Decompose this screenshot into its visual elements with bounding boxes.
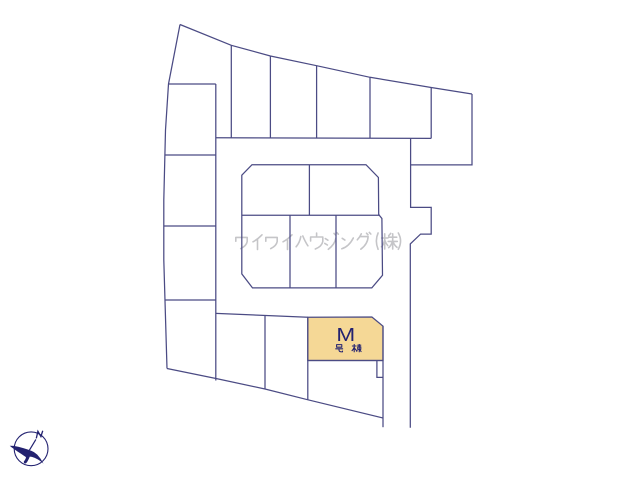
svg-text:M: M [336, 325, 355, 346]
